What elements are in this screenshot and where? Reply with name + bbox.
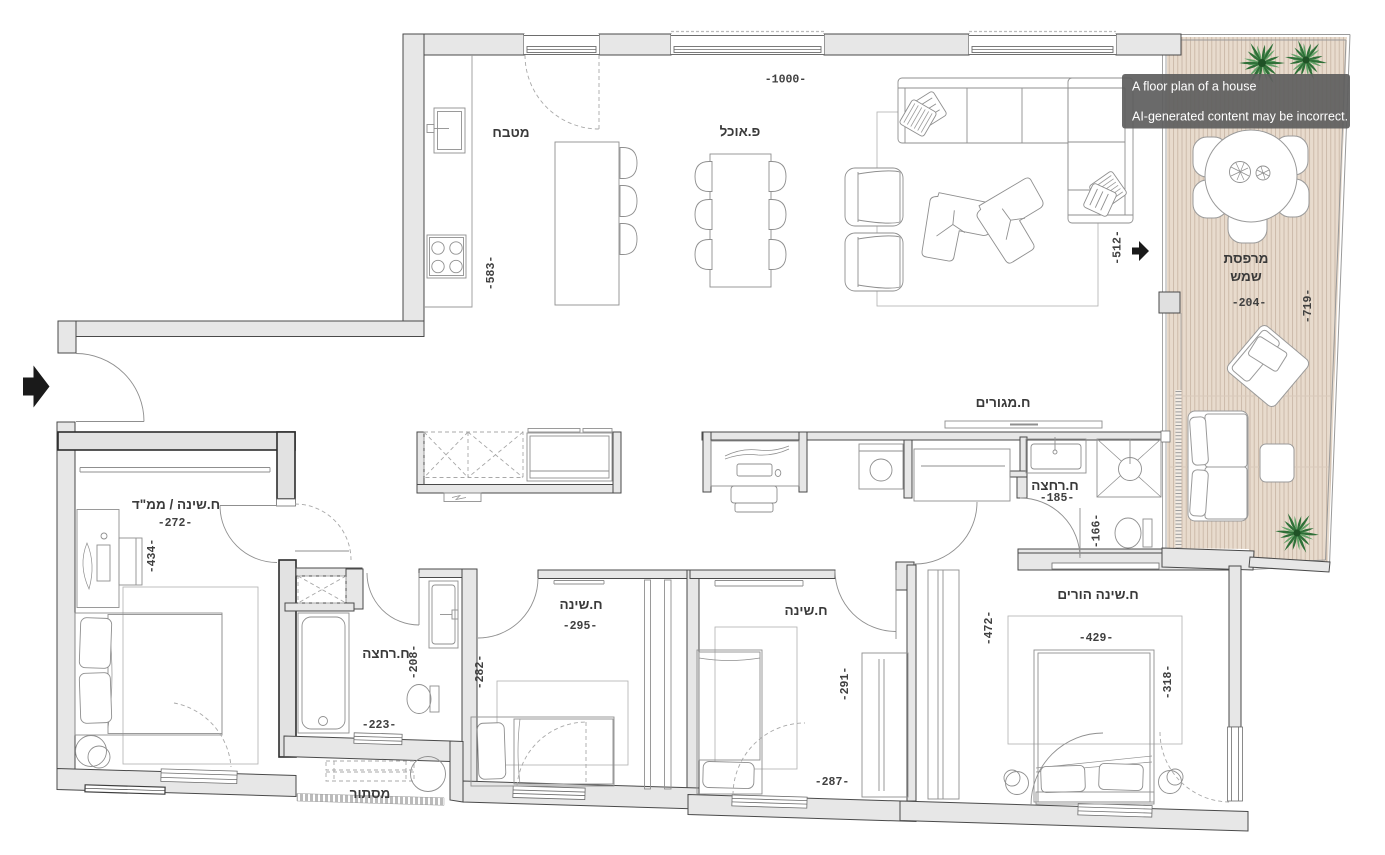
svg-text:פ.אוכל: פ.אוכל [720, 124, 761, 139]
svg-text:ח.שינה: ח.שינה [559, 597, 602, 612]
svg-text:-719-: -719- [1302, 289, 1315, 324]
svg-text:-272-: -272- [158, 517, 193, 530]
svg-text:-282-: -282- [474, 655, 487, 690]
svg-text:ח.שינה: ח.שינה [784, 603, 827, 618]
svg-text:-223-: -223- [362, 719, 397, 732]
svg-text:ח.מגורים: ח.מגורים [976, 395, 1031, 410]
svg-text:מרפסת: מרפסת [1224, 251, 1269, 266]
svg-text:AI-generated content may be in: AI-generated content may be incorrect. [1132, 110, 1348, 124]
svg-text:A floor plan of a house: A floor plan of a house [1132, 80, 1256, 94]
svg-text:מסתור: מסתור [350, 786, 391, 801]
svg-text:ח.רחצה: ח.רחצה [362, 646, 409, 661]
svg-text:-318-: -318- [1162, 665, 1175, 700]
svg-text:-429-: -429- [1079, 632, 1114, 645]
svg-text:-185-: -185- [1040, 492, 1075, 505]
svg-text:-208-: -208- [408, 645, 421, 680]
svg-text:-583-: -583- [485, 256, 498, 291]
svg-text:-291-: -291- [839, 667, 852, 702]
svg-text:-1000-: -1000- [765, 74, 806, 87]
svg-text:ח.שינה / ממ"ד: ח.שינה / ממ"ד [132, 497, 220, 512]
svg-text:ח.רחצה: ח.רחצה [1031, 478, 1078, 493]
svg-text:-295-: -295- [563, 620, 598, 633]
svg-text:-472-: -472- [983, 611, 996, 646]
svg-text:-204-: -204- [1232, 297, 1267, 310]
svg-text:-434-: -434- [146, 539, 159, 574]
svg-text:-512-: -512- [1112, 230, 1125, 265]
svg-text:ח.שינה הורים: ח.שינה הורים [1057, 587, 1138, 602]
svg-text:-287-: -287- [815, 776, 850, 789]
svg-text:שמש: שמש [1230, 269, 1262, 284]
svg-text:מטבח: מטבח [492, 125, 529, 140]
svg-text:-166-: -166- [1091, 514, 1104, 549]
